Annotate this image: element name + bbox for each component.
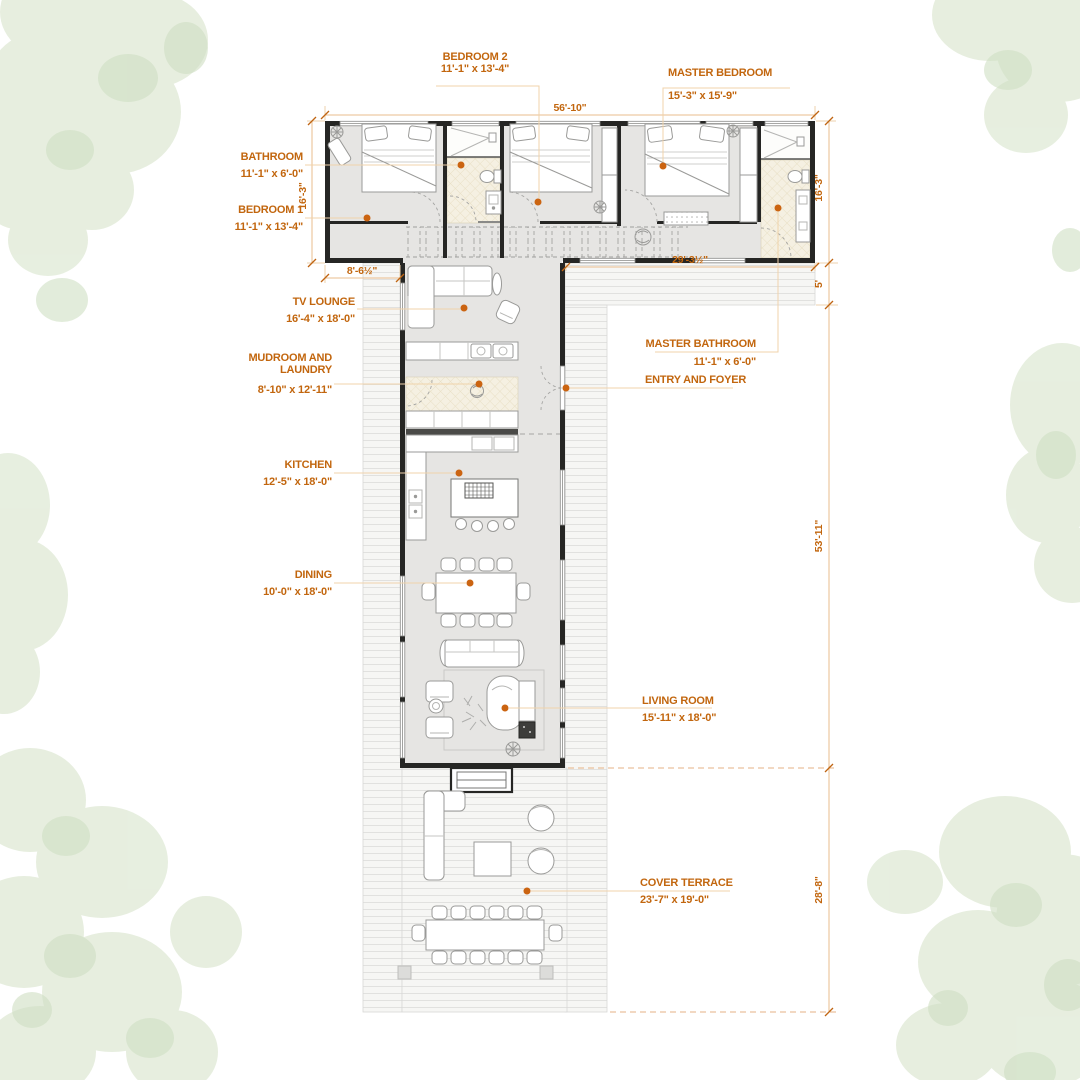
bed-icon-master-bedroom: [645, 124, 729, 196]
vanity-icon-master-bathroom: [796, 190, 810, 242]
room-name: MUDROOM AND LAUNDRY: [202, 352, 332, 376]
room-label-bedroom-2: BEDROOM 2 11'-1" x 13'-4": [400, 51, 550, 75]
lockers-icon: [406, 411, 518, 428]
room-label-mudroom-laundry: MUDROOM AND LAUNDRY 8'-10" x 12'-11": [202, 352, 332, 396]
fireplace-icon: [519, 722, 535, 738]
toilet-icon-master-bathroom: [788, 170, 809, 183]
bench-icon-master: [664, 212, 708, 225]
outdoor-chair-icon: [528, 805, 554, 831]
planter-icon: [398, 966, 411, 979]
room-label-bathroom: BATHROOM 11'-1" x 6'-0": [145, 151, 303, 180]
room-size: 11'-1" x 6'-0": [598, 356, 756, 368]
room-name: MASTER BATHROOM: [598, 338, 756, 350]
room-size: 8'-10" x 12'-11": [202, 384, 332, 396]
laundry-counter-icon: [406, 342, 518, 360]
room-name: KITCHEN: [172, 459, 332, 471]
entry-steps-icon: [451, 768, 512, 792]
room-size: 11'-1" x 13'-4": [145, 221, 303, 233]
room-name: ENTRY AND FOYER: [645, 374, 805, 386]
room-size: 15'-11" x 18'-0": [642, 712, 802, 724]
dim-right-height: 16'-3": [813, 174, 825, 202]
plant-icon: [331, 126, 343, 138]
room-size: 11'-1" x 13'-4": [400, 63, 550, 75]
dim-master-span: 29'-3½": [672, 254, 708, 266]
armchair-icon: [426, 717, 453, 738]
chaise-icon: [487, 676, 523, 730]
room-name: TV LOUNGE: [195, 296, 355, 308]
dim-deck-depth: 5': [813, 280, 825, 288]
dim-top-width: 56'-10": [554, 102, 587, 114]
sink-icon-bathroom: [486, 191, 501, 214]
room-size: 12'-5" x 18'-0": [172, 476, 332, 488]
room-size: 10'-0" x 18'-0": [172, 586, 332, 598]
room-label-master-bathroom: MASTER BATHROOM 11'-1" x 6'-0": [598, 338, 756, 368]
room-label-cover-terrace: COVER TERRACE 23'-7" x 19'-0": [640, 877, 800, 906]
room-label-kitchen: KITCHEN 12'-5" x 18'-0": [172, 459, 332, 488]
room-name: LIVING ROOM: [642, 695, 802, 707]
room-size: 23'-7" x 19'-0": [640, 894, 800, 906]
plant-icon: [506, 742, 520, 756]
room-name: MASTER BEDROOM: [668, 67, 828, 79]
dim-wing-height: 53'-11": [813, 520, 825, 553]
room-label-bedroom-1: BEDROOM 1 11'-1" x 13'-4": [145, 204, 303, 233]
plant-icon: [594, 201, 606, 213]
room-name: BEDROOM 1: [145, 204, 303, 216]
room-size: 15'-3" x 15'-9": [668, 90, 828, 102]
lamp-icon: [493, 273, 502, 295]
armchair-icon: [426, 681, 453, 702]
room-name: DINING: [172, 569, 332, 581]
dim-left-porch: 8'-6½": [347, 265, 377, 277]
room-label-living-room: LIVING ROOM 15'-11" x 18'-0": [642, 695, 802, 724]
room-name: BEDROOM 2: [400, 51, 550, 63]
room-name: BATHROOM: [145, 151, 303, 163]
room-label-dining: DINING 10'-0" x 18'-0": [172, 569, 332, 598]
room-name: COVER TERRACE: [640, 877, 800, 889]
mudroom-floor: [406, 377, 518, 411]
console-icon: [519, 681, 535, 721]
plant-icon: [727, 125, 739, 137]
bed-icon-bedroom-2: [510, 124, 592, 192]
outdoor-chair-icon: [528, 848, 554, 874]
sofa-icon-living: [445, 640, 519, 667]
dim-terrace-height: 28'-8": [813, 876, 825, 904]
room-label-master-bedroom: MASTER BEDROOM 15'-3" x 15'-9": [668, 67, 828, 102]
room-label-tv-lounge: TV LOUNGE 16'-4" x 18'-0": [195, 296, 355, 325]
outdoor-table-icon: [474, 842, 511, 876]
floor-plan-page: 56'-10" 16'-3" 16'-3" 8'-6½" 29'-3½" 5' …: [0, 0, 1080, 1080]
planter-icon: [540, 966, 553, 979]
room-size: 16'-4" x 18'-0": [195, 313, 355, 325]
bed-icon-bedroom-1: [362, 124, 436, 192]
room-label-entry-foyer: ENTRY AND FOYER: [645, 374, 805, 386]
room-size: 11'-1" x 6'-0": [145, 168, 303, 180]
toilet-icon-bathroom: [480, 170, 501, 183]
